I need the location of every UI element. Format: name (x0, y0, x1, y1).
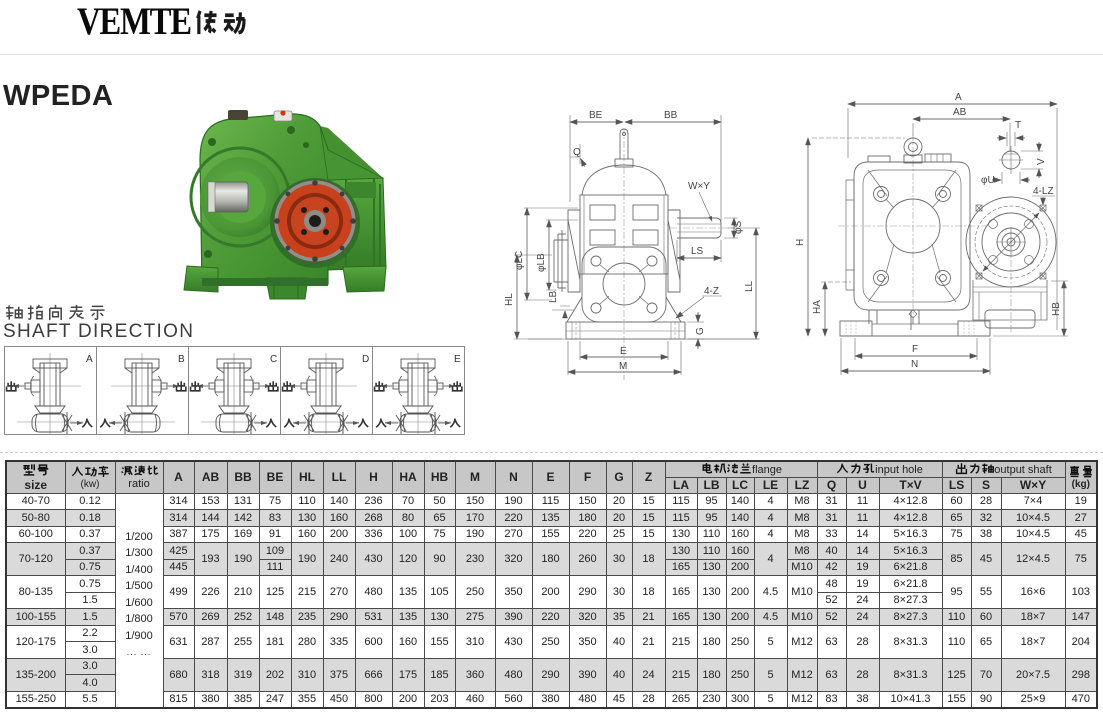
svg-text:HA: HA (812, 300, 823, 314)
svg-text:D: D (362, 354, 369, 365)
svg-text:4-Z: 4-Z (704, 286, 719, 297)
svg-text:LB: LB (548, 290, 559, 303)
svg-text:V: V (1036, 158, 1047, 165)
svg-text:F: F (912, 344, 918, 355)
svg-text:M: M (619, 361, 627, 372)
svg-text:H: H (795, 239, 806, 246)
svg-text:LS: LS (691, 246, 704, 257)
svg-text:G: G (695, 327, 706, 335)
svg-text:BE: BE (589, 110, 603, 121)
svg-text:A: A (86, 354, 93, 365)
svg-text:T: T (1015, 120, 1021, 131)
svg-text:LL: LL (744, 280, 755, 292)
svg-text:φLC: φLC (514, 251, 525, 270)
svg-text:C: C (270, 354, 277, 365)
svg-text:E: E (620, 346, 627, 357)
svg-text:φS: φS (733, 221, 744, 234)
svg-text:HL: HL (504, 293, 515, 306)
svg-text:B: B (178, 354, 185, 365)
svg-text:N: N (911, 359, 918, 370)
svg-text:BB: BB (664, 110, 678, 121)
svg-text:φLB: φLB (536, 253, 547, 272)
svg-text:HB: HB (1051, 302, 1062, 316)
svg-text:E: E (454, 354, 461, 365)
svg-text:φU: φU (981, 175, 995, 186)
svg-text:A: A (955, 92, 962, 103)
svg-text:W×Y: W×Y (688, 181, 710, 192)
svg-text:AB: AB (953, 107, 967, 118)
svg-text:4-LZ: 4-LZ (1033, 186, 1054, 197)
